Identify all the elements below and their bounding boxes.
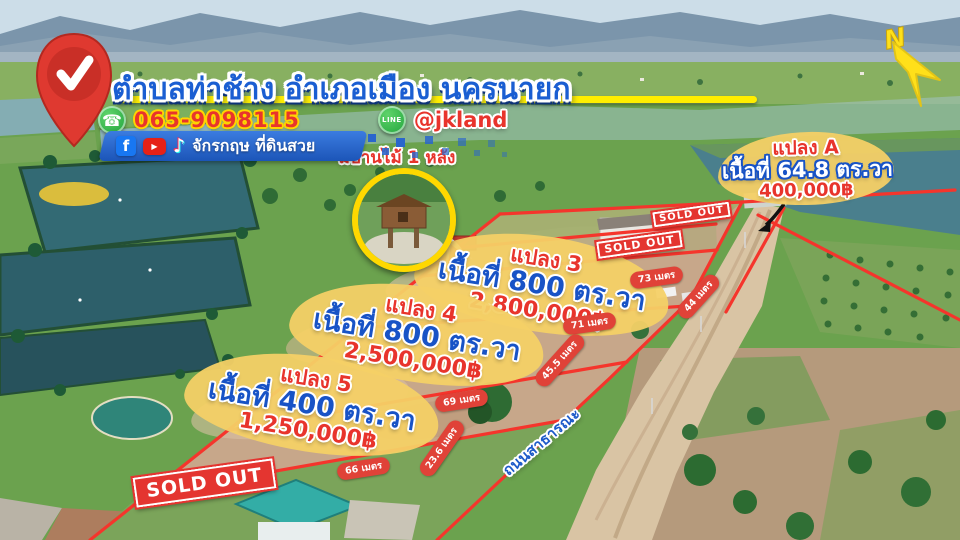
pixel-decoration <box>442 148 449 155</box>
location-pin-check-icon <box>28 28 120 210</box>
phone-number: 065-9098115 <box>134 108 300 132</box>
land-sale-poster: ตำบลท่าช้าง อำเภอเมือง นครนายก ☎ 065-909… <box>0 0 960 540</box>
pixel-decoration <box>502 152 507 157</box>
channel-name: จักรกฤษ ที่ดินสวย <box>192 134 315 159</box>
compass-north-arrow: N <box>868 14 958 118</box>
line-icon-label: LINE <box>382 116 402 124</box>
social-bar: f ▶ ♪ จักรกฤษ ที่ดินสวย <box>102 131 364 161</box>
pixel-decoration <box>488 140 495 147</box>
pixel-decoration <box>425 136 433 144</box>
pixel-decoration <box>396 138 405 147</box>
pixel-decoration <box>382 148 389 155</box>
pixel-decoration <box>412 152 418 158</box>
pixel-decoration <box>458 138 466 146</box>
tiktok-icon: ♪ <box>173 135 185 157</box>
plot-a-price: 400,000฿ <box>722 180 890 202</box>
pixel-decoration <box>474 150 480 156</box>
wooden-house-photo-circle <box>352 168 456 272</box>
youtube-icon: ▶ <box>143 138 166 155</box>
plot-a-label: แปลง A เนื้อที่ 64.8 ตร.วา 400,000฿ <box>721 137 890 203</box>
plot-a-area: เนื้อที่ 64.8 ตร.วา <box>722 157 890 183</box>
line-id: @jkland <box>414 108 508 132</box>
line-app-icon: LINE <box>378 106 406 134</box>
pixel-decoration <box>368 134 376 142</box>
